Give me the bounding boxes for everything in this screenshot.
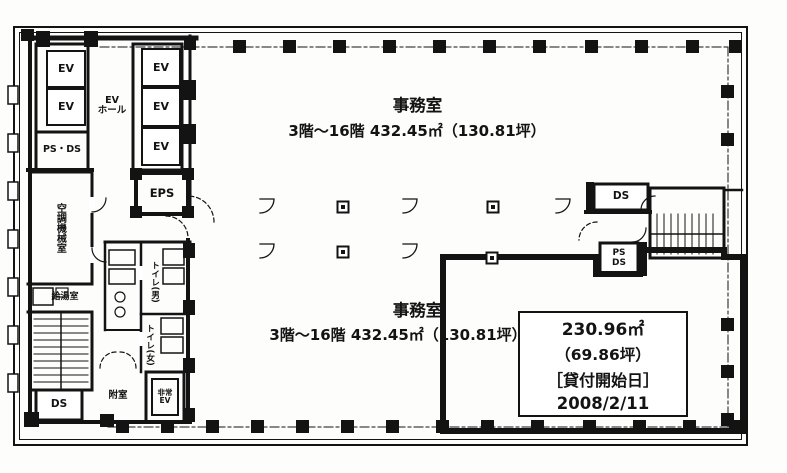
office-upper-detail: 3階～16階 432.45㎡（130.81坪） bbox=[262, 121, 572, 142]
tenant-info-box: 230.96㎡ （69.86坪） ［貸付開始日］ 2008/2/11 bbox=[518, 311, 688, 417]
toilet-men-label: トイレ(男) bbox=[147, 252, 161, 312]
ps-ds-left-label: PS・DS bbox=[36, 136, 88, 164]
tenant-area-tsubo: （69.86坪） bbox=[555, 343, 651, 365]
vestibule-label: 附室 bbox=[98, 388, 138, 404]
ds-lower-left-label: DS bbox=[38, 394, 80, 416]
tenant-area-m2: 230.96㎡ bbox=[562, 315, 645, 340]
ev-hall-label: EV ホール bbox=[90, 88, 134, 124]
kitchenette-label: 給湯室 bbox=[44, 291, 86, 304]
ev-hall-line2: ホール bbox=[98, 106, 127, 116]
left-facade-mullions bbox=[8, 86, 18, 392]
hvac-room-label: 空調機械室 bbox=[50, 186, 68, 270]
tenant-lease-start-label: ［貸付開始日］ bbox=[547, 367, 659, 391]
emergency-ev-label: 非常 EV bbox=[150, 381, 180, 413]
ev-cell-label: EV bbox=[142, 49, 180, 86]
tenant-lease-start-date: 2008/2/11 bbox=[557, 394, 649, 413]
eps-label: EPS bbox=[138, 180, 186, 206]
ps-ds-right-label: PS DS bbox=[601, 245, 637, 272]
left-staircase bbox=[30, 312, 92, 390]
office-lower-detail: 3階～16階 432.45㎡（130.81坪） bbox=[248, 325, 548, 346]
hvac-room bbox=[30, 172, 106, 284]
ds-right-label: DS bbox=[596, 187, 646, 207]
ev-cell-label: EV bbox=[47, 89, 85, 125]
office-lower-name: 事務室 bbox=[340, 300, 495, 322]
ev-cell-label: EV bbox=[142, 128, 180, 165]
ev-cell-label: EV bbox=[47, 51, 85, 87]
ev-cell-label: EV bbox=[142, 88, 180, 126]
toilet-women-label: トイレ(女) bbox=[142, 318, 156, 372]
ps-ds-right-line2: DS bbox=[612, 259, 626, 269]
floor-plan: 3階～16階 432.45㎡（130.81坪） bbox=[0, 0, 787, 473]
emergency-ev-line2: EV bbox=[160, 397, 171, 405]
interior-symbols bbox=[260, 199, 570, 264]
office-upper-name: 事務室 bbox=[340, 95, 495, 117]
